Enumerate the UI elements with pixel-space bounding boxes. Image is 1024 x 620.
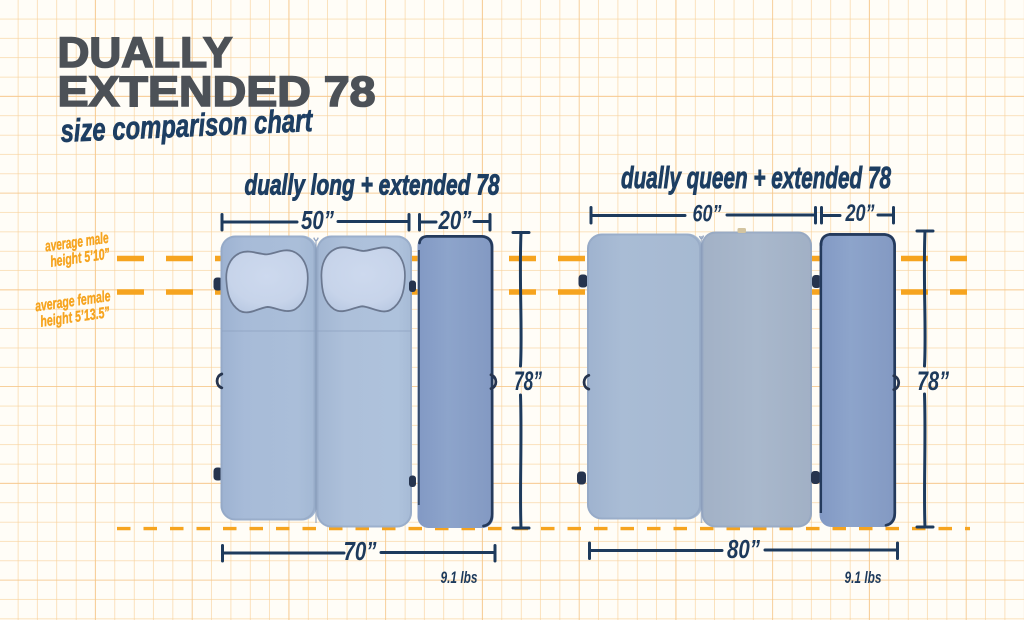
- svg-text:dually queen + extended 78: dually queen + extended 78: [621, 160, 892, 195]
- svg-text:70”: 70”: [344, 536, 377, 566]
- svg-text:80”: 80”: [727, 534, 760, 564]
- svg-text:dually long + extended 78: dually long + extended 78: [245, 170, 501, 202]
- svg-text:9.1 lbs: 9.1 lbs: [845, 569, 882, 587]
- svg-text:20”: 20”: [438, 205, 472, 235]
- svg-text:9.1 lbs: 9.1 lbs: [441, 569, 478, 587]
- svg-text:60”: 60”: [693, 201, 722, 228]
- svg-text:78”: 78”: [917, 366, 949, 396]
- svg-text:50”: 50”: [301, 205, 334, 235]
- svg-text:78”: 78”: [514, 366, 542, 396]
- svg-text:20”: 20”: [845, 200, 875, 227]
